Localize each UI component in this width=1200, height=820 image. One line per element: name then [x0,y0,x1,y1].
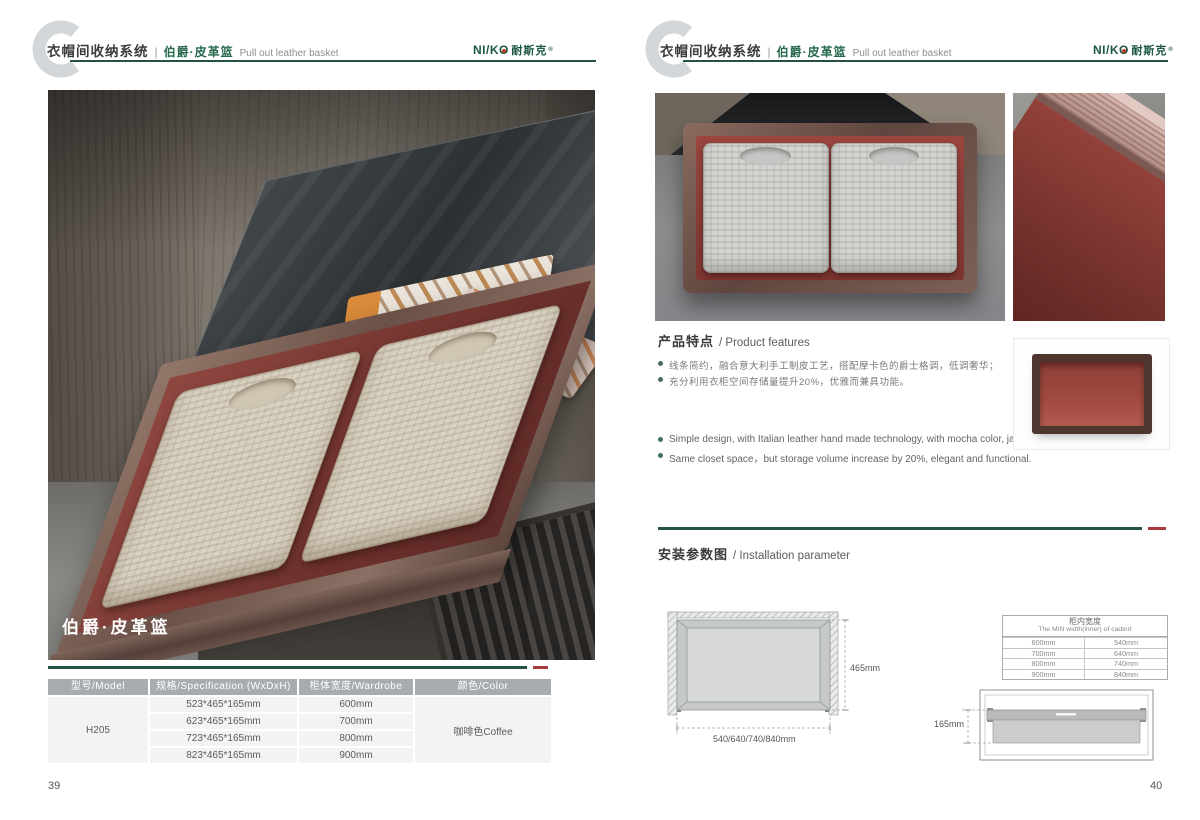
cell: 900mm [1003,670,1085,680]
registered-mark: ® [548,47,552,53]
spec-cell: 723*465*165mm [150,731,297,746]
bullet-icon [658,377,663,382]
separator-red [533,666,548,669]
table-row: 800mm 740mm [1003,658,1167,669]
product-name-en: Pull out leather basket [853,48,952,59]
page-number-left: 39 [48,780,60,792]
product-thumbnail [1013,338,1170,450]
product-name-cn: 伯爵·皮革篮 [164,43,234,60]
inner-width-title-cn: 柜内宽度 [1003,617,1167,626]
product-name-en: Pull out leather basket [240,48,339,59]
features-title: 产品特点 / Product features [658,331,810,350]
model-cell: H205 [48,697,148,763]
width-cell: 900mm [299,748,413,763]
basket-corner-detail-photo [1013,93,1165,321]
catalog-spread: 衣帽间收纳系统 | 伯爵·皮革篮 Pull out leather basket… [0,0,1200,820]
logo-o-icon: O [1119,43,1128,57]
separator-green [48,666,527,669]
bullet-icon [658,361,663,366]
table-header-width: 柜体宽度/Wardrobe width [299,679,413,695]
feature-text-cn: 充分利用衣柜空间存储量提升20%，优雅而兼具功能。 [669,374,910,388]
spec-cell: 823*465*165mm [150,748,297,763]
bullet-icon [658,437,663,442]
bullet-icon [658,453,663,458]
system-title: 衣帽间收纳系统 [660,40,762,60]
logo-o-icon: O [499,43,508,57]
installation-title-en: / Installation parameter [733,550,850,562]
installation-title: 安装参数图 / Installation parameter [658,544,850,563]
cell: 540mm [1085,638,1167,648]
header-rule [70,60,596,62]
header-divider: | [768,45,771,59]
spec-table: 型号/Model 规格/Specification (WxDxH) 柜体宽度/W… [48,679,551,763]
cell: 640mm [1085,649,1167,659]
table-row: 600mm 540mm [1003,637,1167,648]
page-header-right: 衣帽间收纳系统 | 伯爵·皮革篮 Pull out leather basket [660,40,952,58]
basket-top-view-photo [655,93,1005,321]
folded-sweater [831,143,957,273]
cell: 800mm [1003,659,1085,669]
cell: 840mm [1085,670,1167,680]
basket-corner [1013,93,1165,321]
logo-text: NI/K [473,43,499,57]
logo-text: NI/K [1093,43,1119,57]
header-rule [683,60,1168,62]
logo-cn: 耐斯克 [1131,42,1167,58]
basket-leather-interior [696,136,964,280]
table-row: 700mm 640mm [1003,648,1167,659]
logo-cn: 耐斯克 [511,42,547,58]
separator-green [658,527,1142,530]
nisko-logo: NI/KO 耐斯克 ® [473,42,553,58]
features-title-en: / Product features [719,337,810,349]
system-title: 衣帽间收纳系统 [47,40,149,60]
feature-text-en: Simple design, with Italian leather hand… [669,434,1057,445]
cell: 600mm [1003,638,1085,648]
feature-text-cn: 线条简约，融合意大利手工制皮工艺，搭配摩卡色的爵士格调，低调奢华； [669,358,999,372]
photo-caption: 伯爵·皮革篮 [62,613,171,638]
page-header-left: 衣帽间收纳系统 | 伯爵·皮革篮 Pull out leather basket [47,40,339,58]
installation-title-cn: 安装参数图 [658,544,728,563]
inner-width-table-header: 柜内宽度 The MIN width(inner) of cadinrt [1003,616,1167,637]
feature-text-en: Same closet space，but storage volume inc… [669,450,1031,465]
cell: 740mm [1085,659,1167,669]
nisko-logo: NI/KO 耐斯克 ® [1093,42,1173,58]
table-row: 900mm 840mm [1003,669,1167,680]
width-dimension: 540/640/740/840mm [713,734,796,744]
header-divider: | [155,45,158,59]
separator-red [1148,527,1166,530]
registered-mark: ® [1168,47,1172,53]
product-name-cn: 伯爵·皮革篮 [777,43,847,60]
feature-bullet: 线条简约，融合意大利手工制皮工艺，搭配摩卡色的爵士格调，低调奢华； [658,358,999,372]
color-cell: 咖啡色Coffee [415,697,551,763]
folded-sweater [703,143,829,273]
leather-basket-thumb [1032,354,1152,434]
height-dimension: 165mm [934,719,964,729]
depth-dimension: 465mm [850,663,880,673]
table-header-color: 颜色/Color [415,679,551,695]
side-view-diagram [930,683,1170,768]
leather-basket [683,123,977,293]
width-cell: 700mm [299,714,413,729]
main-product-photo: 伯爵·皮革篮 [48,90,595,660]
page-number-right: 40 [1150,780,1162,792]
spec-cell: 523*465*165mm [150,697,297,712]
table-header-spec: 规格/Specification (WxDxH) [150,679,297,695]
cell: 700mm [1003,649,1085,659]
width-cell: 600mm [299,697,413,712]
feature-bullet: 充分利用衣柜空间存储量提升20%，优雅而兼具功能。 [658,374,910,388]
width-cell: 800mm [299,731,413,746]
table-header-model: 型号/Model [48,679,148,695]
feature-bullet: Same closet space，but storage volume inc… [658,450,1031,465]
feature-bullet: Simple design, with Italian leather hand… [658,434,1057,445]
spec-cell: 623*465*165mm [150,714,297,729]
features-title-cn: 产品特点 [658,331,714,350]
inner-width-title-en: The MIN width(inner) of cadinrt [1003,626,1167,634]
inner-width-table: 柜内宽度 The MIN width(inner) of cadinrt 600… [1002,615,1168,680]
